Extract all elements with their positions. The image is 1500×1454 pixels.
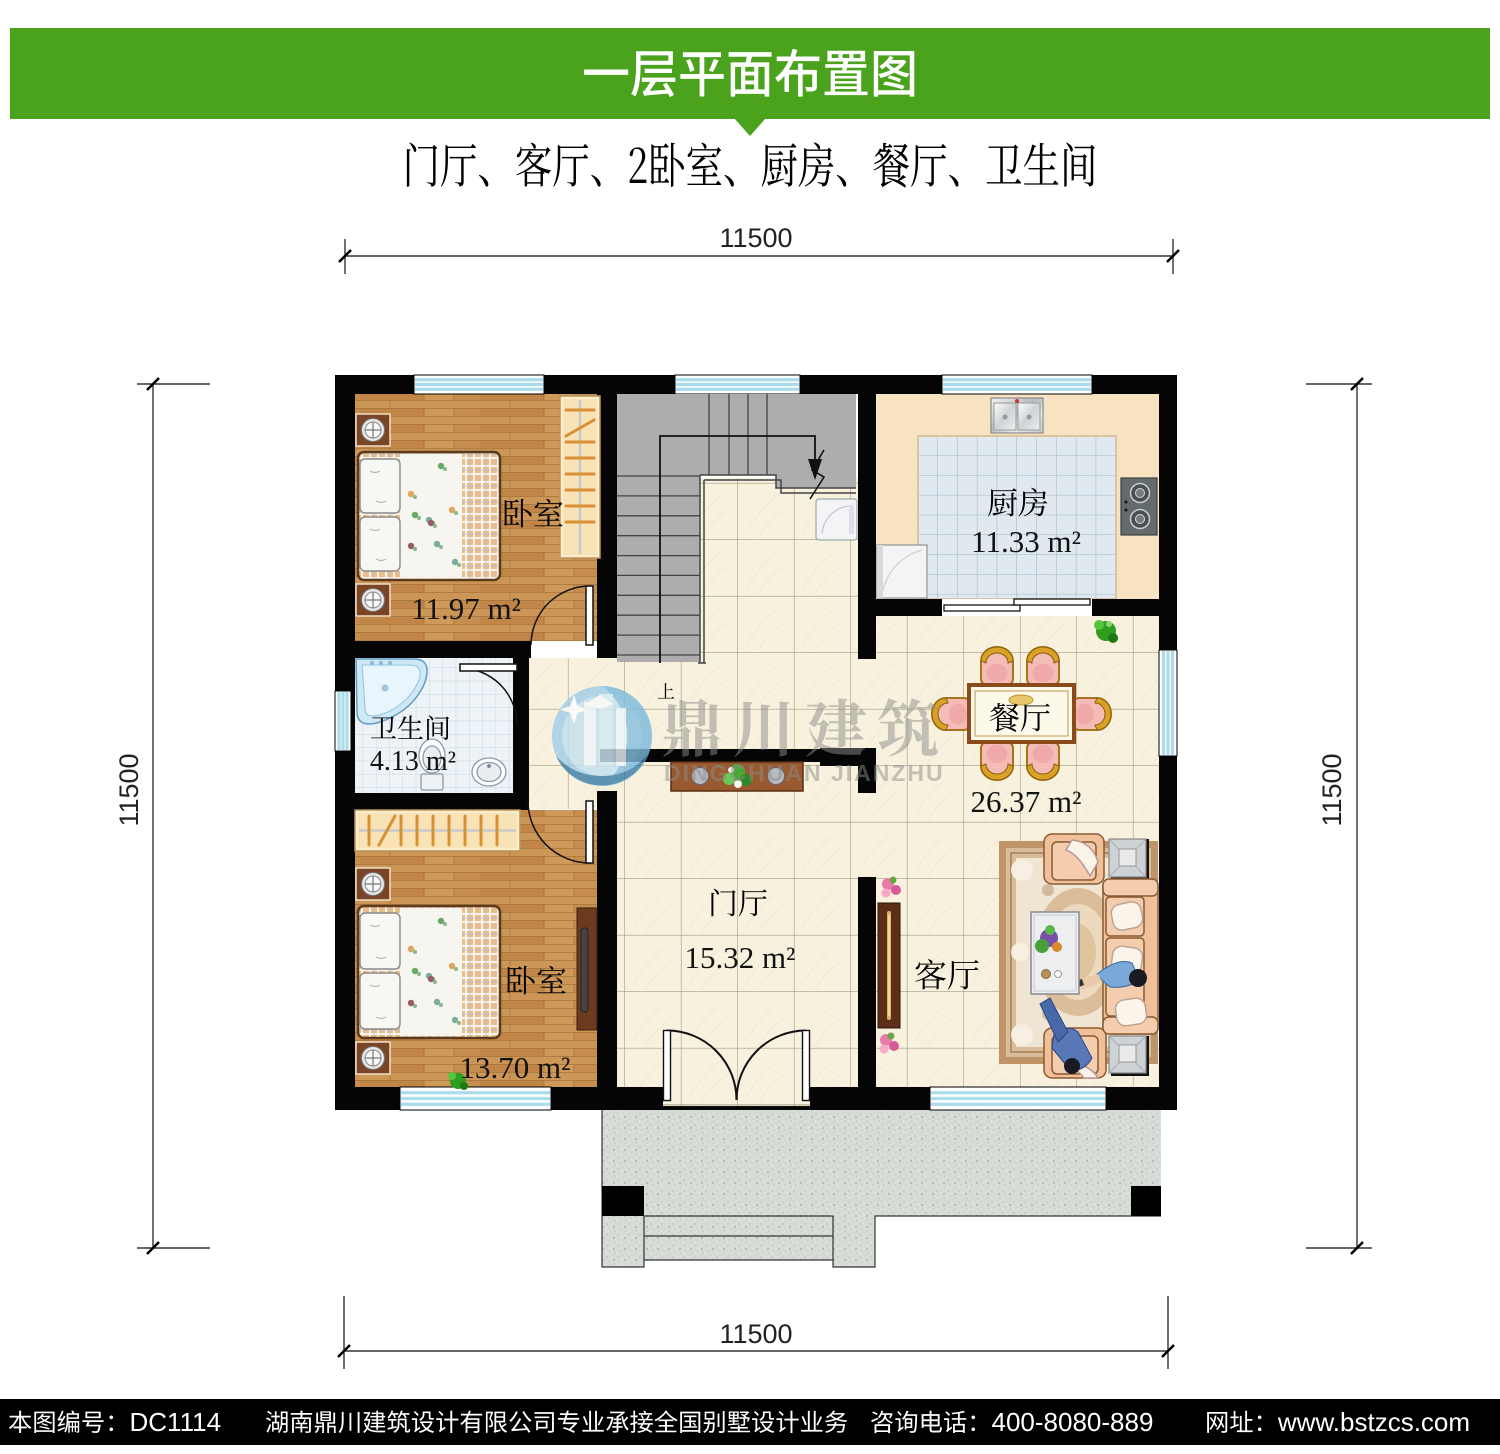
svg-text:11500: 11500 [719, 223, 792, 253]
svg-text:11500: 11500 [1317, 753, 1347, 826]
svg-text:400-8080-889: 400-8080-889 [992, 1407, 1154, 1437]
svg-text:11500: 11500 [114, 753, 144, 826]
svg-text:DC1114: DC1114 [130, 1407, 222, 1437]
svg-text:11500: 11500 [719, 1319, 792, 1349]
svg-text:13.70 m²: 13.70 m² [460, 1050, 571, 1085]
svg-text:15.32 m²: 15.32 m² [685, 940, 796, 975]
svg-text:DINGCHUAN JIANZHU: DINGCHUAN JIANZHU [664, 760, 945, 786]
svg-text:11.97 m²: 11.97 m² [411, 591, 521, 626]
svg-text:26.37 m²: 26.37 m² [971, 784, 1082, 819]
svg-text:4.13 m²: 4.13 m² [370, 746, 456, 777]
svg-text:www.bstzcs.com: www.bstzcs.com [1277, 1407, 1470, 1437]
svg-text:11.33 m²: 11.33 m² [971, 524, 1081, 559]
